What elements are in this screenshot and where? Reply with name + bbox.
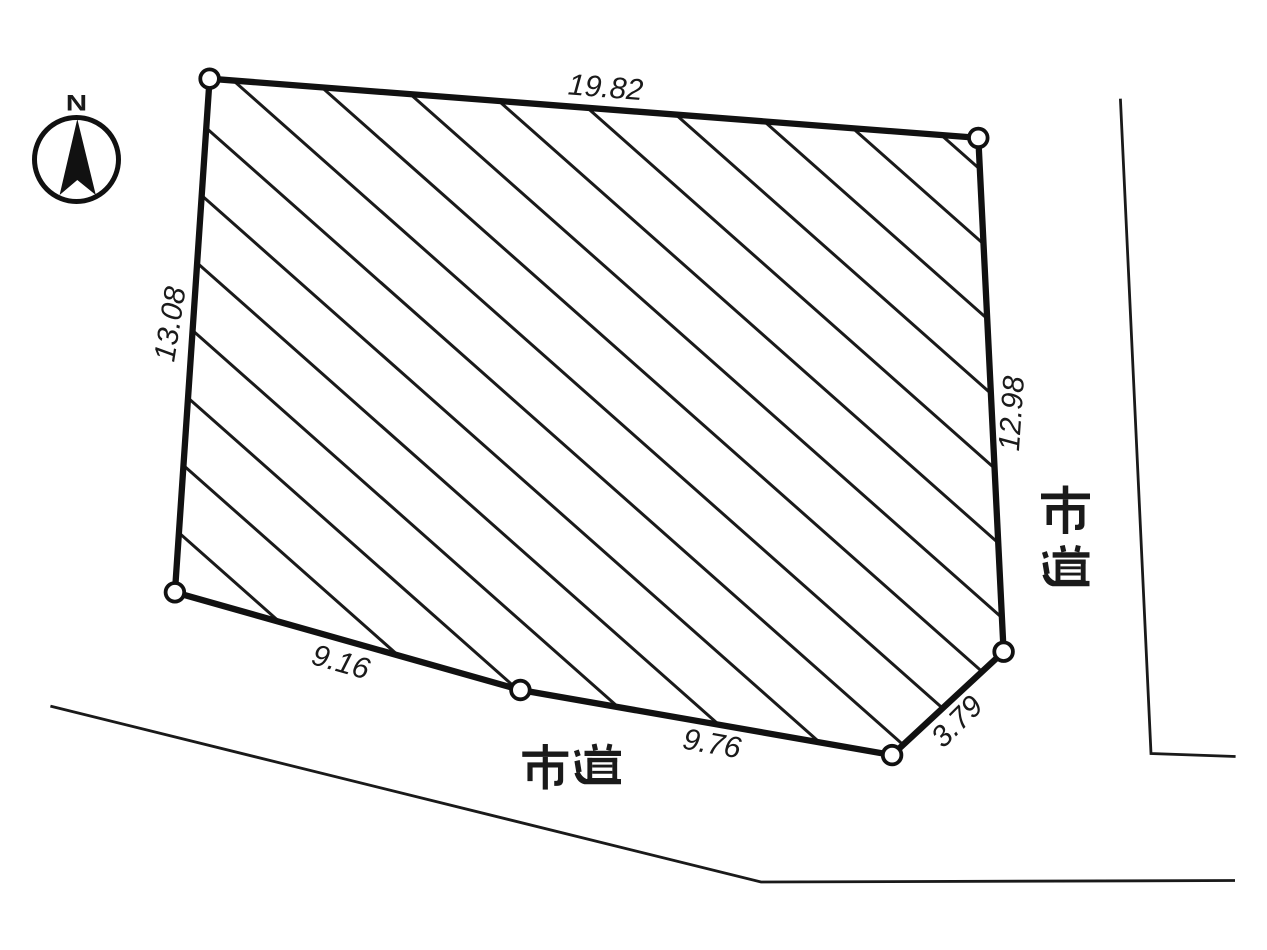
svg-text:12.98: 12.98 bbox=[993, 375, 1031, 453]
svg-text:19.82: 19.82 bbox=[567, 68, 645, 107]
svg-text:N: N bbox=[66, 90, 87, 115]
